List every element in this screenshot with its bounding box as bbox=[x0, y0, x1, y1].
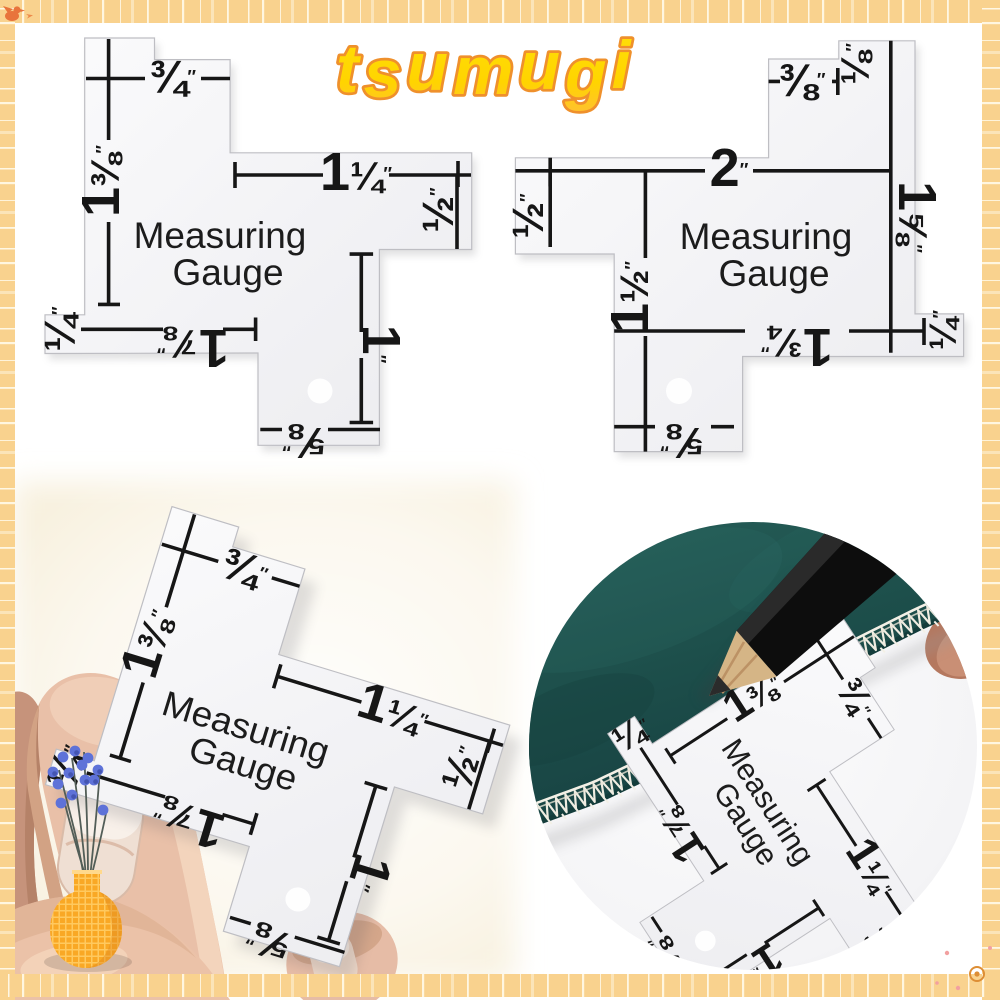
svg-text:Measuring: Measuring bbox=[680, 216, 853, 257]
svg-text:tsumugi: tsumugi bbox=[336, 27, 636, 112]
svg-text:Gauge: Gauge bbox=[718, 253, 829, 294]
